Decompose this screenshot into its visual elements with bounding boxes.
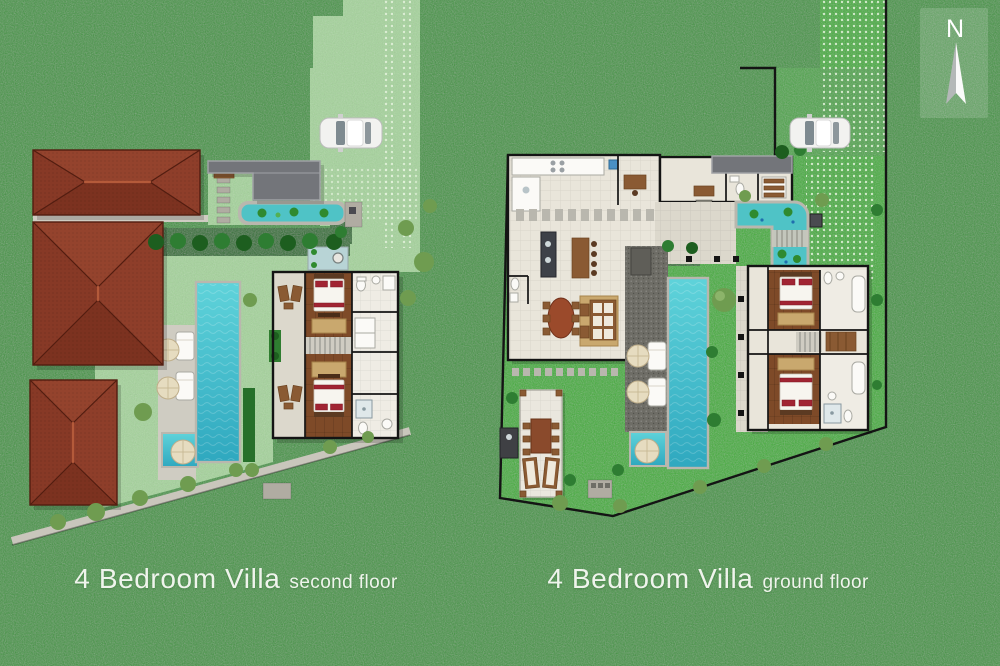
caption-second-floor: 4 Bedroom Villa second floor	[74, 563, 397, 595]
paver-band	[516, 209, 654, 221]
pavilion-table	[531, 419, 551, 453]
left-roof-middle	[33, 222, 167, 370]
right-stairs	[796, 332, 822, 352]
left-roof-bottom	[30, 380, 121, 510]
left-roof-top	[33, 150, 204, 220]
left-gate-pad	[345, 202, 362, 227]
plan-title: 4 Bedroom Villa	[74, 563, 280, 595]
right-bedroom-wing	[748, 266, 872, 434]
dining-table	[543, 298, 579, 338]
compass-north-label: N	[946, 15, 964, 43]
right-pool-zone	[625, 246, 708, 468]
outdoor-kitchen	[500, 428, 518, 458]
left-poolside-hedge	[243, 388, 255, 462]
left-bed-2	[314, 374, 344, 417]
right-bed-2	[780, 374, 812, 415]
left-bed-1	[314, 274, 344, 317]
living-room	[580, 296, 618, 346]
left-rug-1	[312, 319, 346, 333]
car-icon	[790, 114, 850, 152]
study-desk	[624, 175, 646, 189]
plan-subtitle: second floor	[289, 572, 397, 594]
right-main-pool	[668, 278, 708, 468]
compass: N	[920, 8, 988, 118]
left-utility-pad	[263, 483, 291, 499]
car-icon	[320, 114, 382, 152]
garden-pavilion	[520, 390, 565, 500]
site-plan-image: N 4 Bedroom Villa second floor 4 Bedroom…	[0, 0, 1000, 666]
caption-ground-floor: 4 Bedroom Villa ground floor	[547, 563, 868, 595]
left-lawn-patch	[345, 250, 420, 272]
left-main-pool	[196, 282, 240, 462]
entry-mat	[694, 186, 714, 196]
right-bed-1	[780, 272, 812, 309]
plan-subtitle: ground floor	[762, 572, 868, 594]
left-planter	[269, 330, 281, 362]
plan-title: 4 Bedroom Villa	[547, 563, 753, 595]
left-bedroom-block	[269, 272, 403, 443]
left-stairs	[305, 337, 352, 354]
left-fountain-court	[308, 247, 348, 270]
right-utility-pad	[588, 480, 612, 498]
pond-statue	[810, 214, 822, 227]
